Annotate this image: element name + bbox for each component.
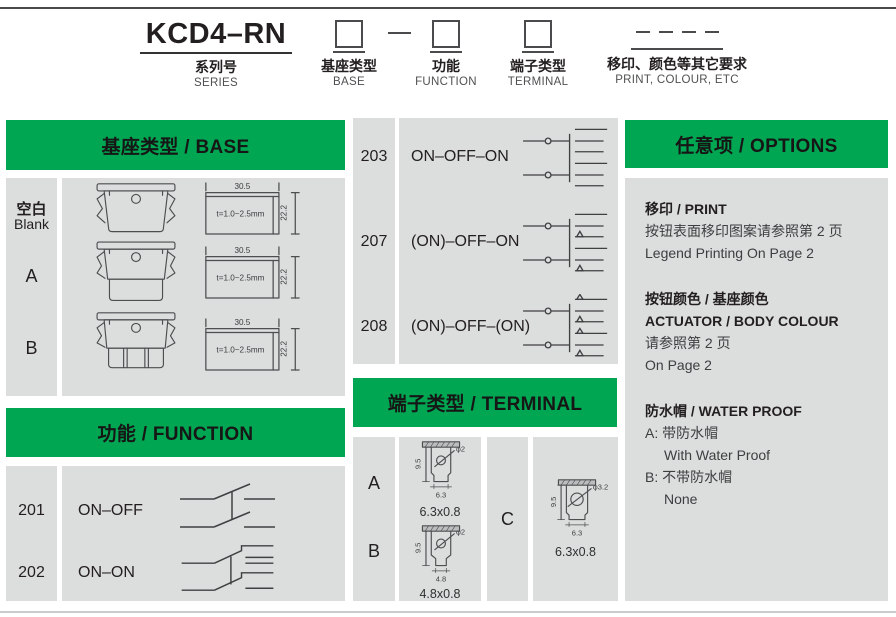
function-label-mom-on-off-mom-on: (ON)–OFF–(ON) — [411, 318, 530, 336]
dim-width: 30.5 — [234, 318, 250, 327]
code-segment-print: 移印、颜色等其它要求 PRINT, COLOUR, ETC — [592, 18, 762, 88]
function-label-en: FUNCTION — [396, 75, 496, 90]
function-code-box — [432, 20, 460, 48]
terminal-c-height-dim: 9.5 — [549, 497, 558, 507]
terminal-code-underline — [522, 51, 554, 53]
dim-height: 22.2 — [280, 268, 289, 284]
code-segment-base: 基座类型 BASE — [299, 18, 399, 90]
function-code-column: 201 202 — [6, 466, 57, 601]
dim-thickness: t=1.0~2.5mm — [216, 274, 264, 283]
bottom-rule — [0, 611, 896, 613]
options-colour-heading-zh: 按钮颜色 / 基座颜色 — [645, 288, 876, 310]
base-section-header: 基座类型 / BASE — [6, 120, 345, 170]
dim-width: 30.5 — [234, 246, 250, 255]
panel-cutout-dimension-drawing: 30.5 t=1.0~2.5mm 22.2 — [202, 316, 302, 374]
function-code-202: 202 — [6, 564, 57, 582]
dim-width: 30.5 — [234, 182, 250, 191]
function-label-on-off-on: ON–OFF–ON — [411, 148, 509, 166]
terminal-b-width-dim: 4.8 — [436, 575, 446, 584]
rocker-switch-drawing-blank — [90, 182, 182, 237]
dim-height: 22.2 — [280, 340, 289, 356]
print-label-zh: 移印、颜色等其它要求 — [592, 56, 762, 73]
base-row-blank-en: Blank — [6, 216, 57, 232]
terminal-code-a: A — [353, 473, 395, 494]
terminal-label-zh: 端子类型 — [488, 58, 588, 75]
base-label-en: BASE — [299, 75, 399, 90]
print-underline — [631, 48, 723, 50]
terminal-label-en: TERMINAL — [488, 75, 588, 90]
print-dashes — [592, 31, 762, 44]
terminal-drawing-b: φ2 9.5 4.8 — [403, 523, 479, 587]
code-segment-function: 功能 FUNCTION — [396, 18, 496, 90]
print-label-en: PRINT, COLOUR, ETC — [592, 73, 762, 88]
terminal-drawings-panel-ab: φ2 9.5 6.3 6.3x0.8 φ2 9.5 4.8 — [399, 437, 481, 601]
options-colour-zh: 请参照第 2 页 — [645, 332, 876, 354]
terminal-c-width-dim: 6.3 — [572, 529, 582, 538]
panel-cutout-dimension-drawing: 30.5 t=1.0~2.5mm 22.2 — [202, 180, 302, 238]
terminal-b-height-dim: 9.5 — [414, 543, 423, 553]
terminal-a-height-dim: 9.5 — [414, 459, 423, 469]
options-print-heading: 移印 / PRINT — [645, 198, 876, 220]
code-segment-series: KCD4–RN 系列号 SERIES — [140, 18, 292, 91]
options-print-en: Legend Printing On Page 2 — [645, 242, 876, 264]
base-row-a: A — [6, 266, 57, 287]
terminal-c-size: 6.3x0.8 — [533, 545, 618, 559]
options-waterproof-b-en: None — [645, 488, 876, 510]
base-row-b: B — [6, 338, 57, 359]
function-label-on-on: ON–ON — [78, 564, 135, 582]
options-waterproof-a-zh: A: 带防水帽 — [645, 422, 876, 444]
top-rule — [0, 7, 896, 9]
base-code-box — [335, 20, 363, 48]
terminal-a-hole-dim: φ2 — [456, 445, 465, 454]
circuit-symbol-on-off — [178, 480, 278, 532]
dim-thickness: t=1.0~2.5mm — [216, 346, 264, 355]
options-print-zh: 按钮表面移印图案请参照第 2 页 — [645, 220, 876, 242]
function2-rows-panel: ON–OFF–ON (ON)–OFF–ON (ON)–OFF–(ON) — [399, 118, 618, 364]
terminal-code-box — [524, 20, 552, 48]
function-code-201: 201 — [6, 502, 57, 520]
options-colour-heading-en: ACTUATOR / BODY COLOUR — [645, 310, 876, 332]
terminal-b-hole-dim: φ2 — [456, 528, 465, 537]
rocker-switch-drawing-b — [90, 311, 182, 373]
rocker-switch-drawing-a — [90, 240, 182, 306]
panel-cutout-dimension-drawing: 30.5 t=1.0~2.5mm 22.2 — [202, 244, 302, 302]
base-code-column: 空白 Blank A B — [6, 178, 57, 396]
function-code-207: 207 — [353, 233, 395, 251]
terminal-drawing-c: φ3.2 9.5 6.3 — [539, 477, 615, 541]
terminal-drawings-panel-c: φ3.2 9.5 6.3 6.3x0.8 — [533, 437, 618, 601]
terminal-code-column-c: C — [487, 437, 528, 601]
function2-code-column: 203 207 208 — [353, 118, 395, 364]
terminal-code-b: B — [353, 541, 395, 562]
series-label-en: SERIES — [140, 76, 292, 91]
base-code-underline — [333, 51, 365, 53]
circuit-symbol-on-off-on — [523, 124, 609, 192]
options-waterproof-b-zh: B: 不带防水帽 — [645, 466, 876, 488]
function-code-208: 208 — [353, 318, 395, 336]
series-code: KCD4–RN — [140, 18, 292, 50]
terminal-code-c: C — [487, 509, 528, 530]
base-drawings-panel: 30.5 t=1.0~2.5mm 22.2 30.5 t=1.0~2.5mm 2… — [62, 178, 345, 396]
circuit-symbol-mom-on-off-mom-on — [523, 294, 609, 362]
options-waterproof-a-en: With Water Proof — [645, 444, 876, 466]
dim-height: 22.2 — [280, 204, 289, 220]
base-label-zh: 基座类型 — [299, 58, 399, 75]
function-label-zh: 功能 — [396, 58, 496, 75]
code-segment-terminal: 端子类型 TERMINAL — [488, 18, 588, 90]
function-code-underline — [430, 51, 462, 53]
function-label-mom-on-off-on: (ON)–OFF–ON — [411, 233, 519, 251]
options-panel: 移印 / PRINT 按钮表面移印图案请参照第 2 页 Legend Print… — [625, 178, 888, 601]
options-section-header: 任意项 / OPTIONS — [625, 120, 888, 168]
terminal-c-hole-dim: φ3.2 — [593, 483, 608, 492]
terminal-a-size: 6.3x0.8 — [399, 505, 481, 519]
circuit-symbol-mom-on-off-on — [523, 209, 609, 277]
terminal-code-column-ab: A B — [353, 437, 395, 601]
series-label-zh: 系列号 — [140, 59, 292, 76]
options-colour-en: On Page 2 — [645, 354, 876, 376]
dim-thickness: t=1.0~2.5mm — [216, 210, 264, 219]
terminal-drawing-a: φ2 9.5 6.3 — [403, 439, 479, 503]
datasheet-page: KCD4–RN 系列号 SERIES 基座类型 BASE 功能 FUNCTION… — [0, 0, 896, 617]
terminal-a-width-dim: 6.3 — [436, 491, 446, 500]
terminal-section-header: 端子类型 / TERMINAL — [353, 378, 617, 427]
series-underline — [140, 52, 292, 54]
function-rows-panel: ON–OFF ON–ON — [62, 466, 345, 601]
function-section-header: 功能 / FUNCTION — [6, 408, 345, 457]
options-waterproof-heading: 防水帽 / WATER PROOF — [645, 400, 876, 422]
function-code-203: 203 — [353, 148, 395, 166]
circuit-symbol-on-on — [178, 540, 278, 596]
terminal-b-size: 4.8x0.8 — [399, 587, 481, 601]
function-label-on-off: ON–OFF — [78, 502, 143, 520]
